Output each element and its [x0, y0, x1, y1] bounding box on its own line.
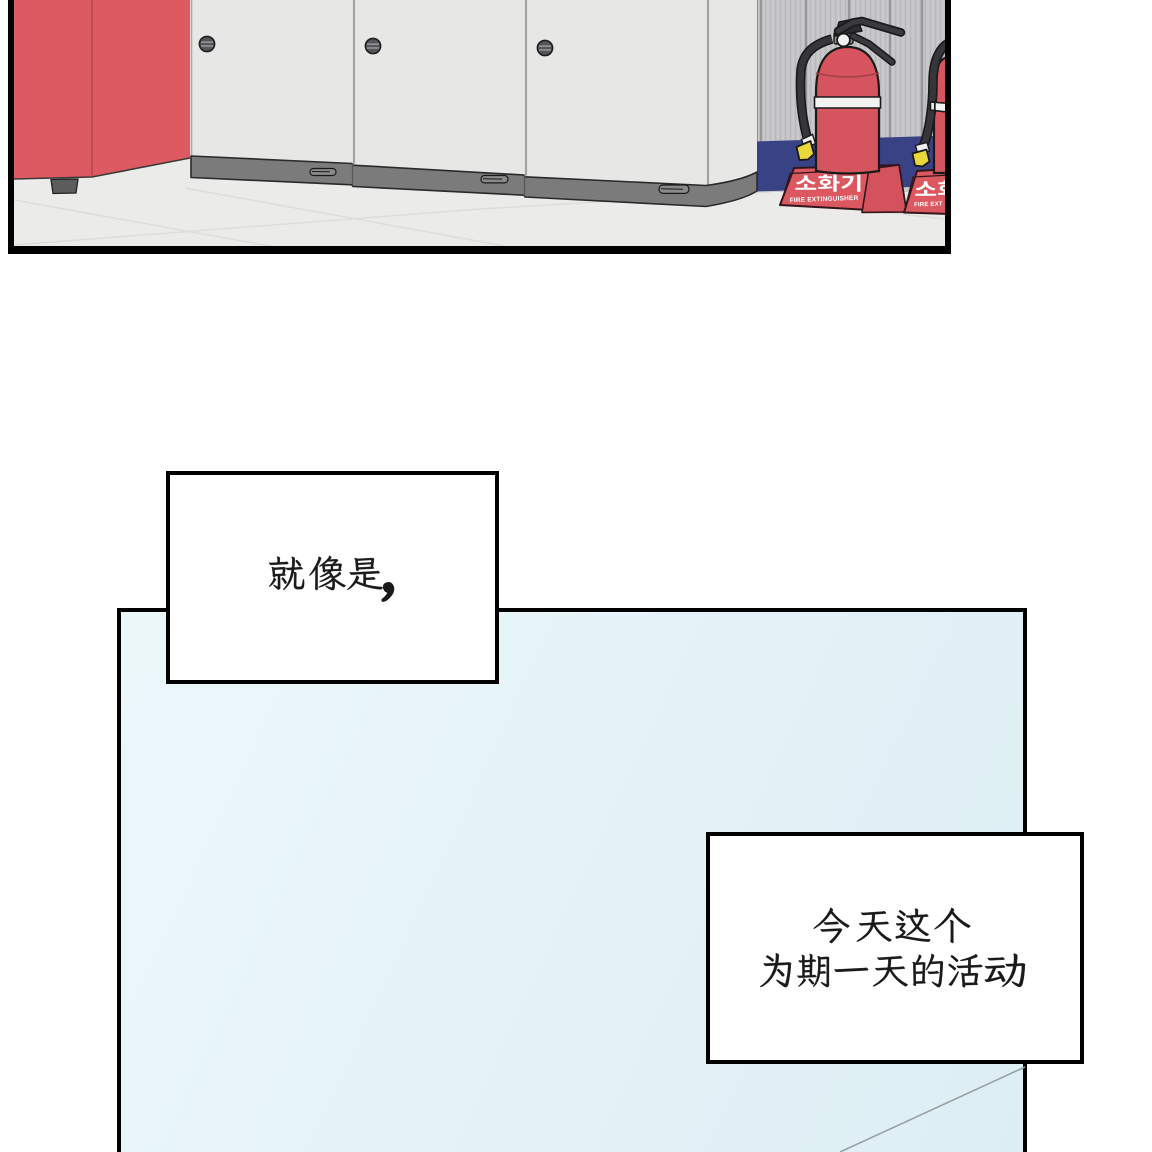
svg-text:FIRE EXT: FIRE EXT	[914, 201, 943, 208]
